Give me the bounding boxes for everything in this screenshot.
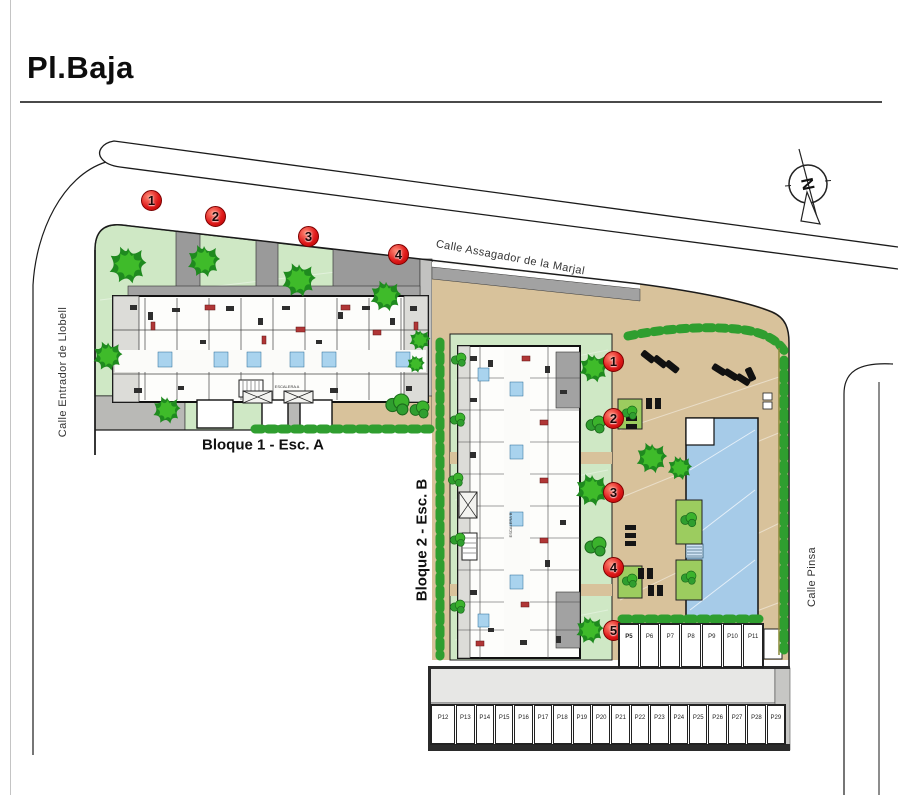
parking-stall: P13 [456, 705, 474, 744]
parking-stall: P6 [640, 624, 660, 667]
block2-building: ESCALERA B [458, 346, 580, 658]
street-marker-top-1: 1 [141, 190, 162, 211]
compass-icon: N [785, 149, 831, 224]
side-marker-1: 1 [603, 351, 624, 372]
parking-stall: P21 [611, 705, 629, 744]
street-marker-top-2: 2 [205, 206, 226, 227]
parking-stall: P15 [495, 705, 513, 744]
parking-stall: P18 [553, 705, 571, 744]
compass-north-label: N [797, 176, 818, 192]
side-marker-3: 3 [603, 482, 624, 503]
street-marker-top-4: 4 [388, 244, 409, 265]
side-marker-4: 4 [603, 557, 624, 578]
parking-stall: P16 [514, 705, 532, 744]
parking-stall: P9 [702, 624, 722, 667]
parking-row-bottom: P12 P13 P14 P15 P16 P17 P18 P19 P20 P21 … [430, 704, 786, 745]
right-street [844, 364, 893, 795]
parking-stall: P8 [681, 624, 701, 667]
street-name-right: Calle Pinsa [806, 547, 818, 607]
parking-stall: P27 [728, 705, 746, 744]
parking-stall: P11 [743, 624, 763, 667]
block1-label: Bloque 1 - Esc. A [202, 437, 324, 454]
site-plan-drawing: ESCALERA A [0, 0, 898, 795]
parking-stall: P5 [619, 624, 639, 667]
parking-stall: P23 [650, 705, 668, 744]
parking-stall: P24 [670, 705, 688, 744]
block2-label: Bloque 2 - Esc. B [414, 479, 431, 602]
stair-b-label: ESCALERA B [508, 512, 513, 537]
parking-stall: P28 [747, 705, 765, 744]
parking-row-side: P5 P6 P7 P8 P9 P10 P11 [618, 623, 764, 668]
site-plan-page: Pl.Baja [0, 0, 898, 795]
parking-stall: P14 [476, 705, 494, 744]
parking-stall: P7 [660, 624, 680, 667]
parking-stall: P17 [534, 705, 552, 744]
parking-stall: P20 [592, 705, 610, 744]
parking-stall: P19 [573, 705, 591, 744]
parking-stall: P10 [723, 624, 743, 667]
street-name-left: Calle Entrador de Llobell [57, 307, 69, 437]
street-marker-top-3: 3 [298, 226, 319, 247]
parking-stall: P12 [431, 705, 455, 744]
parking-stall: P25 [689, 705, 707, 744]
parking-stall: P22 [631, 705, 649, 744]
side-marker-2: 2 [603, 408, 624, 429]
parking-stall: P29 [767, 705, 785, 744]
stair-a-label: ESCALERA A [275, 384, 300, 389]
parking-stall: P26 [708, 705, 726, 744]
